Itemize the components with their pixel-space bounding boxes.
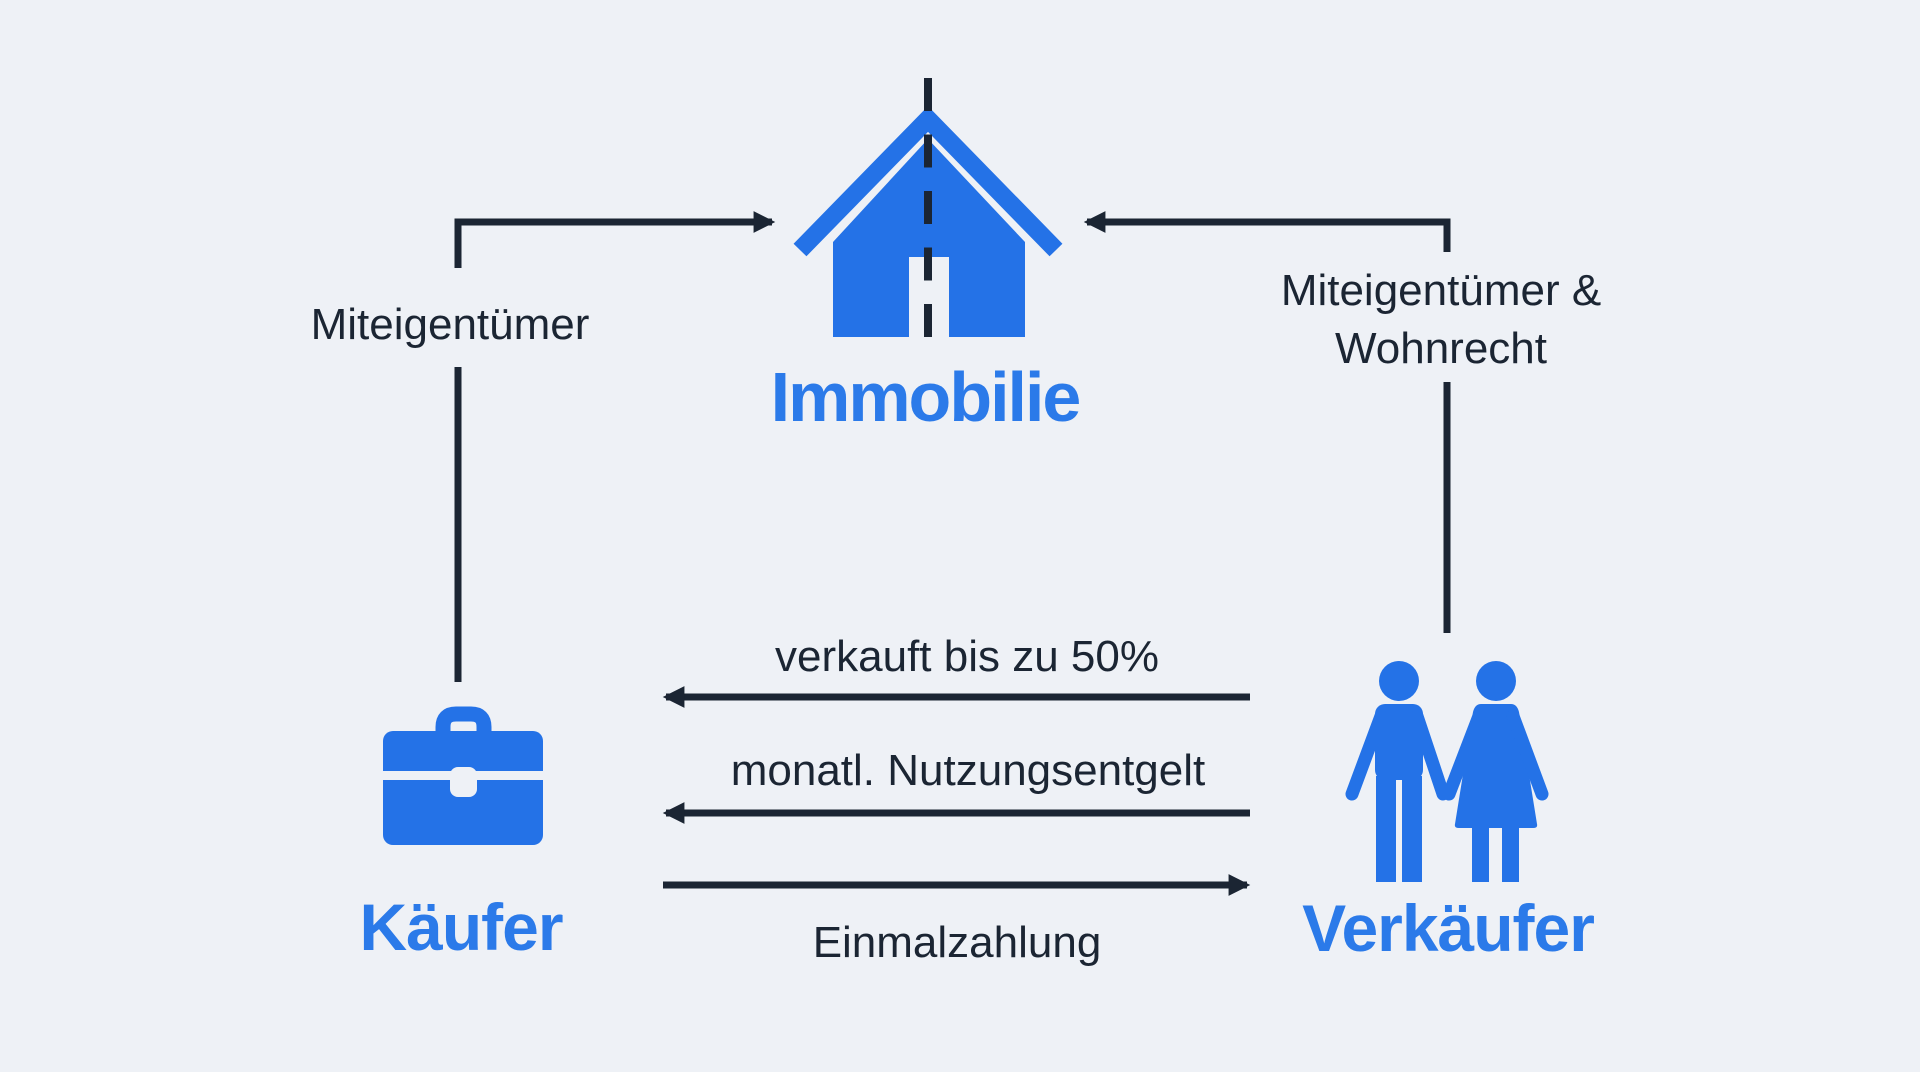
seller-node-label: Verkäufer [1148,895,1748,961]
property-node-label: Immobilie [625,362,1225,432]
house-icon [800,78,1056,337]
seller-property-edge-label: Miteigentümer & Wohnrecht [1141,262,1741,378]
fee-arrow-label: monatl. Nutzungsentgelt [668,747,1268,795]
buyer-node-label: Käufer [161,894,761,960]
buyer-property-connector [458,222,772,682]
briefcase-icon [383,714,543,845]
seller-property-edge-label-line1: Miteigentümer & [1141,262,1741,320]
diagram-canvas: Miteigentümer Miteigentümer & Wohnrecht … [0,0,1920,1072]
seller-property-edge-label-line2: Wohnrecht [1141,320,1741,378]
buyer-property-edge-label: Miteigentümer [150,301,750,349]
sale-arrow-label: verkauft bis zu 50% [667,633,1267,681]
couple-icon [1352,661,1542,882]
